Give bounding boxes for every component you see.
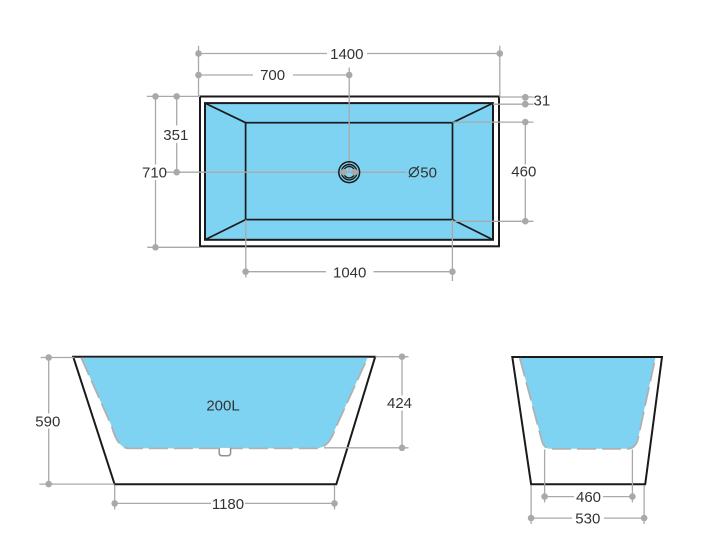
svg-text:710: 710 (142, 164, 167, 181)
svg-text:200L: 200L (206, 398, 239, 415)
svg-text:424: 424 (387, 395, 412, 412)
svg-text:351: 351 (163, 127, 188, 144)
svg-text:31: 31 (534, 93, 551, 110)
svg-text:460: 460 (511, 164, 536, 181)
svg-text:460: 460 (576, 489, 601, 506)
svg-text:530: 530 (575, 510, 600, 527)
svg-text:700: 700 (260, 67, 285, 84)
svg-text:50: 50 (420, 164, 437, 181)
svg-text:590: 590 (35, 413, 60, 430)
svg-text:1180: 1180 (212, 496, 244, 513)
svg-text:1400: 1400 (330, 46, 363, 63)
svg-text:1040: 1040 (333, 264, 366, 281)
